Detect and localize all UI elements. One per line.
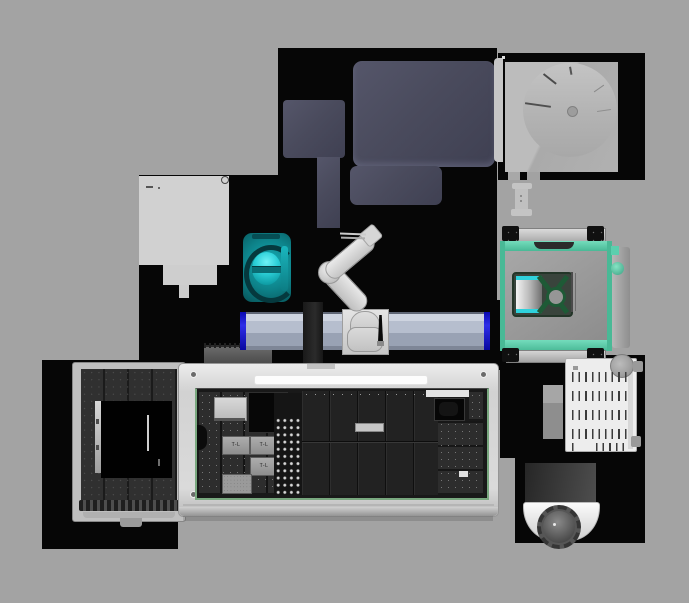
deck-right-light-bar xyxy=(426,390,469,397)
deck-well-plate[interactable] xyxy=(222,474,252,494)
turntable-dot xyxy=(553,523,556,526)
template-dot xyxy=(158,187,160,189)
station-side-clip xyxy=(611,246,619,255)
instrument-front-bumper xyxy=(79,500,179,511)
template-step xyxy=(163,265,217,285)
rail-pillar xyxy=(303,302,323,365)
instrument-foot xyxy=(120,518,142,527)
grille-corner-chip xyxy=(573,366,578,370)
dock-screw-1 xyxy=(520,195,522,197)
vent-grille-device[interactable] xyxy=(565,358,637,452)
deck-plate-a[interactable]: T-L xyxy=(222,436,250,455)
enclosure-screw-tl xyxy=(190,371,197,378)
template-pin-hole xyxy=(221,176,229,184)
station-knob[interactable] xyxy=(611,262,624,275)
imager-brand-label xyxy=(252,234,280,239)
deck-left-bracket xyxy=(197,425,207,450)
enclosure-screw-tr xyxy=(480,371,487,378)
left-instrument[interactable] xyxy=(72,362,186,522)
carousel-hub xyxy=(567,106,578,117)
dock-screw-2 xyxy=(520,200,522,202)
deck-carrier-corner xyxy=(469,392,483,419)
rail-bracket-tr xyxy=(587,226,604,241)
deck-hole-row xyxy=(302,392,438,397)
enclosure-front-bar xyxy=(179,507,498,516)
plate-carousel[interactable] xyxy=(505,62,618,172)
instrument-template-plate[interactable] xyxy=(139,176,229,265)
transfer-station[interactable] xyxy=(500,241,612,351)
opening-mark xyxy=(158,459,160,466)
microplate-skirt xyxy=(214,418,245,421)
carousel-door-edge xyxy=(494,58,503,162)
teal-imager[interactable] xyxy=(243,233,291,302)
carousel-foot-left xyxy=(508,172,520,180)
side-module-top xyxy=(543,385,563,403)
workcell-scene: T-L T-L T-L xyxy=(0,0,689,603)
instrument-lid-large[interactable] xyxy=(353,61,495,167)
deck-carriers-right xyxy=(438,421,483,493)
plate-a-label: T-L xyxy=(232,443,241,448)
opening-sliver xyxy=(147,415,149,451)
liquid-handler[interactable]: T-L T-L T-L xyxy=(178,363,499,517)
grille-row-1 xyxy=(572,372,630,382)
enclosure-top-tab xyxy=(307,364,335,369)
dock-bracket-body[interactable] xyxy=(515,189,528,209)
mobile-robot[interactable] xyxy=(523,461,599,547)
overhead-module[interactable] xyxy=(283,100,345,158)
robot-top-deck xyxy=(525,463,596,503)
door-latch-1 xyxy=(96,419,99,424)
rail-end-cap-left xyxy=(240,312,246,350)
imager-side-bar xyxy=(281,246,288,291)
turntable-center xyxy=(543,511,575,543)
rail-end-cap-right xyxy=(484,312,490,350)
side-module xyxy=(543,385,563,439)
door-rail-strip xyxy=(95,401,101,473)
grille-row-5b xyxy=(596,443,629,451)
station-guide-line-2 xyxy=(575,273,576,311)
viewport-center-ring xyxy=(546,287,566,307)
robot-tool-tip xyxy=(377,341,384,346)
carousel-status-dot xyxy=(502,56,505,59)
carousel-foot-right xyxy=(527,172,540,180)
deck-tube-rack[interactable] xyxy=(275,417,301,495)
enclosure-shadow xyxy=(183,516,493,521)
station-viewport[interactable] xyxy=(512,272,573,317)
deck-label-tag xyxy=(355,423,384,432)
template-mark xyxy=(146,186,153,188)
robot-base xyxy=(347,327,383,352)
rail-bracket-bl xyxy=(502,348,519,362)
imager-lens-slot xyxy=(252,266,281,273)
grille-row-3 xyxy=(572,410,630,420)
enclosure-front-seam xyxy=(183,504,494,506)
deck-white-tag xyxy=(459,471,468,477)
enclosure-light-bar xyxy=(254,375,428,385)
deck-seam-light xyxy=(302,442,438,443)
door-latch-2 xyxy=(96,445,99,450)
plate-b-label: T-L xyxy=(260,443,269,448)
module-inset xyxy=(439,402,458,416)
grille-handle-top[interactable] xyxy=(633,361,643,372)
template-tab xyxy=(179,285,189,298)
grille-row-4 xyxy=(572,429,630,439)
overhead-module-stem xyxy=(317,157,340,228)
station-handle-arc xyxy=(534,242,574,249)
grille-row-5a xyxy=(572,443,575,451)
deck-panels-middle xyxy=(302,391,438,495)
instrument-opening[interactable] xyxy=(101,401,172,478)
instrument-lid-small[interactable] xyxy=(350,166,442,205)
grille-handle-bottom[interactable] xyxy=(631,436,641,447)
station-guide-line-1 xyxy=(571,272,573,312)
grille-row-2 xyxy=(572,391,630,401)
deck-black-module-right xyxy=(434,398,465,421)
plate-c-label: T-L xyxy=(260,464,269,469)
rail-bracket-tl xyxy=(502,226,519,241)
handler-deck[interactable]: T-L T-L T-L xyxy=(195,388,489,500)
dock-bracket-bottom xyxy=(511,209,532,216)
